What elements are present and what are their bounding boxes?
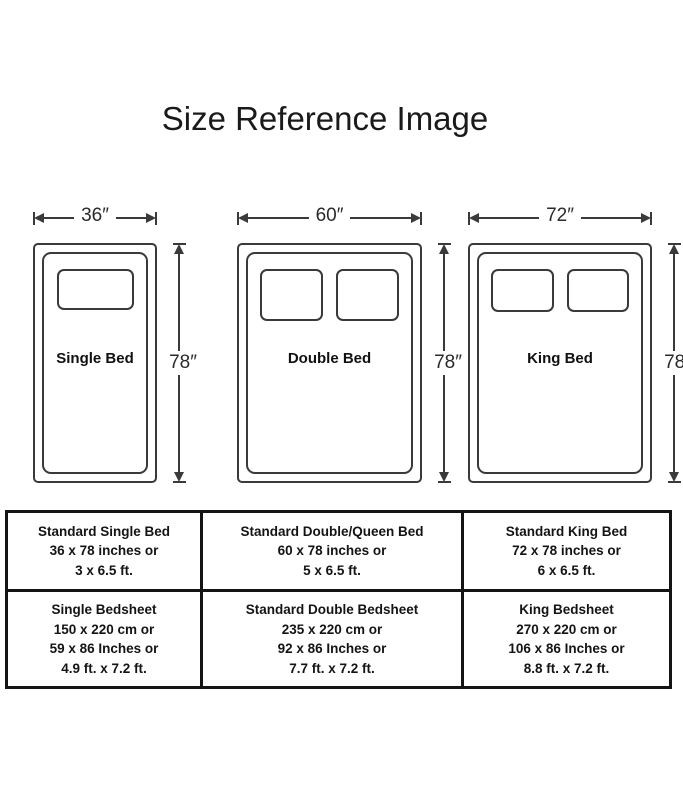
arrow-endcap: [650, 212, 652, 225]
cell-line: 72 x 78 inches or: [512, 541, 621, 561]
cell-line: 7.7 ft. x 7.2 ft.: [289, 659, 375, 679]
arrowhead-up-icon: [174, 244, 184, 254]
height-dimension-arrow: 78″: [652, 243, 683, 483]
dimension-line: [44, 217, 74, 219]
cell-line: 8.8 ft. x 7.2 ft.: [524, 659, 610, 679]
dimension-line: [248, 217, 309, 219]
table-cell-single-bedsheet: Single Bedsheet 150 x 220 cm or 59 x 86 …: [8, 589, 203, 686]
bed-diagram-single: 36″ Single Bed 78″: [33, 207, 201, 483]
pillow-row: [491, 269, 629, 312]
cell-line: Standard Double/Queen Bed: [240, 522, 423, 542]
dimension-line: [350, 217, 411, 219]
cell-line: Standard Double Bedsheet: [246, 600, 419, 620]
bed-outline: Single Bed: [33, 243, 157, 483]
pillow-row: [260, 269, 399, 321]
dimension-line: [116, 217, 146, 219]
bed-outline: Double Bed: [237, 243, 422, 483]
cell-line: Standard Single Bed: [38, 522, 170, 542]
cell-line: 106 x 86 Inches or: [508, 639, 624, 659]
bed-outline: King Bed: [468, 243, 652, 483]
pillow: [491, 269, 554, 312]
pillow-row: [56, 269, 134, 310]
width-dimension-arrow: 60″: [237, 207, 422, 229]
cell-line: 3 x 6.5 ft.: [75, 561, 133, 581]
table-cell-standard-double-bedsheet: Standard Double Bedsheet 235 x 220 cm or…: [203, 589, 464, 686]
width-label: 60″: [309, 205, 351, 227]
arrow-endcap: [668, 481, 681, 483]
cell-line: 92 x 86 Inches or: [278, 639, 387, 659]
dimension-line: [673, 254, 675, 351]
dimension-line: [443, 254, 445, 351]
dimension-line: [581, 217, 641, 219]
mattress-outline: Single Bed: [42, 252, 148, 474]
page-title: Size Reference Image: [0, 100, 650, 138]
cell-line: 6 x 6.5 ft.: [538, 561, 596, 581]
table-cell-king-bedsheet: King Bedsheet 270 x 220 cm or 106 x 86 I…: [464, 589, 669, 686]
arrowhead-left-icon: [469, 213, 479, 223]
arrow-endcap: [173, 481, 186, 483]
bed-name: Single Bed: [44, 350, 146, 367]
mattress-outline: King Bed: [477, 252, 643, 474]
size-reference-table: Standard Single Bed 36 x 78 inches or 3 …: [5, 510, 672, 689]
height-label: 78″: [169, 351, 197, 375]
bed-diagram-king: 72″ King Bed 78″: [468, 207, 683, 483]
dimension-line: [178, 254, 180, 351]
table-cell-standard-king-bed: Standard King Bed 72 x 78 inches or 6 x …: [464, 513, 669, 589]
bed-name: King Bed: [479, 350, 641, 367]
table-cell-standard-single-bed: Standard Single Bed 36 x 78 inches or 3 …: [8, 513, 203, 589]
width-label: 36″: [74, 205, 116, 227]
width-dimension-arrow: 72″: [468, 207, 652, 229]
arrowhead-left-icon: [238, 213, 248, 223]
pillow: [567, 269, 630, 312]
dimension-line: [479, 217, 539, 219]
arrowhead-left-icon: [34, 213, 44, 223]
dimension-line: [673, 375, 675, 472]
pillow: [57, 269, 134, 310]
cell-line: 4.9 ft. x 7.2 ft.: [61, 659, 147, 679]
cell-line: 235 x 220 cm or: [282, 620, 383, 640]
cell-line: 270 x 220 cm or: [516, 620, 617, 640]
cell-line: 59 x 86 Inches or: [50, 639, 159, 659]
pillow: [260, 269, 323, 321]
dimension-line: [178, 375, 180, 472]
height-label: 78″: [434, 351, 462, 375]
arrow-endcap: [155, 212, 157, 225]
arrowhead-up-icon: [439, 244, 449, 254]
pillow: [336, 269, 399, 321]
arrow-endcap: [420, 212, 422, 225]
cell-line: Standard King Bed: [506, 522, 628, 542]
cell-line: 36 x 78 inches or: [50, 541, 159, 561]
cell-line: Single Bedsheet: [51, 600, 156, 620]
height-label: 78″: [664, 351, 683, 375]
height-dimension-arrow: 78″: [422, 243, 466, 483]
arrowhead-up-icon: [669, 244, 679, 254]
cell-line: King Bedsheet: [519, 600, 614, 620]
bed-name: Double Bed: [248, 350, 411, 367]
cell-line: 5 x 6.5 ft.: [303, 561, 361, 581]
mattress-outline: Double Bed: [246, 252, 413, 474]
height-dimension-arrow: 78″: [157, 243, 201, 483]
arrow-endcap: [438, 481, 451, 483]
width-dimension-arrow: 36″: [33, 207, 157, 229]
table-cell-standard-double-queen-bed: Standard Double/Queen Bed 60 x 78 inches…: [203, 513, 464, 589]
cell-line: 60 x 78 inches or: [278, 541, 387, 561]
width-label: 72″: [539, 205, 581, 227]
dimension-line: [443, 375, 445, 472]
bed-diagram-double: 60″ Double Bed 78″: [237, 207, 466, 483]
size-reference-diagram: Size Reference Image 36″ Single Bed: [0, 0, 683, 800]
cell-line: 150 x 220 cm or: [54, 620, 155, 640]
